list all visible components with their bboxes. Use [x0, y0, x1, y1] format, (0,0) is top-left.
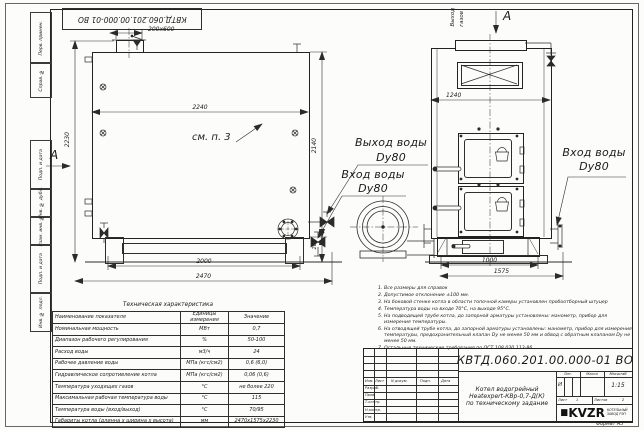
col-izm: Изм.	[365, 379, 373, 383]
water-outlet-dy: Dy80	[350, 151, 432, 164]
col-header-name: Наименование показателя	[53, 312, 181, 324]
row-tkontr: Т.контр.	[365, 400, 381, 404]
logo-sub2: ЗАВОД РЭП	[607, 413, 628, 417]
side-view-fittings	[85, 35, 334, 256]
cell-unit: °С	[181, 405, 229, 417]
dim-front-base: 1000	[441, 257, 538, 264]
lit-label: Лит.	[556, 372, 580, 376]
scale-value: 1:15	[604, 382, 632, 389]
cell-unit: МПа (кгс/см2)	[181, 370, 229, 382]
format-note: Формат А3	[596, 422, 623, 427]
col-list: Лист	[375, 379, 384, 383]
col-doc: N докум.	[391, 379, 408, 383]
table-header-row: Наименование показателя Единицы измерени…	[53, 312, 285, 324]
cell-name: Рабочее давление воды	[53, 358, 181, 370]
cell-unit: МПа (кгс/см2)	[181, 358, 229, 370]
notes-list: Все размеры для справок Допустимое откло…	[374, 286, 632, 353]
cell-value: 50-100	[229, 335, 285, 347]
document-code: КВТД.060.201.00.000-01 ВО	[458, 349, 632, 371]
cell-name: Температура уходящих газов	[53, 381, 181, 393]
cell-name: Расход воды	[53, 347, 181, 359]
cell-value: 24	[229, 347, 285, 359]
padlock-icon	[496, 198, 509, 212]
tech-table-title: Техническая характеристика	[52, 302, 284, 308]
note-item: Температура воды на входе 70°С, на выход…	[384, 307, 632, 313]
table-row: Номинальная мощностьМВт0,7	[53, 324, 285, 336]
row-nkontr: Н.контр.	[365, 408, 381, 412]
drawing-sheet: Перв. примен. Справ. № Подп. и дата Инв.…	[0, 0, 644, 430]
dim-height-total: 2230	[64, 132, 71, 147]
document-name: Котел водогрейный Heatexpert-КВр-0,7-Д(К…	[458, 371, 556, 421]
cell-name: Максимальная рабочая температура воды	[53, 393, 181, 405]
cell-value: 0,7	[229, 324, 285, 336]
inspection-mark	[100, 130, 106, 136]
cell-unit: °С	[181, 381, 229, 393]
row-prov: Пров.	[365, 393, 375, 397]
document-name-line2: Heatexpert-КВр-0,7-Д(К)	[469, 393, 545, 400]
col-header-unit: Единицы измерения	[181, 312, 229, 324]
table-row: Расход водым3/ч24	[53, 347, 285, 359]
dim-height-body: 2140	[311, 138, 318, 153]
inspection-mark	[292, 130, 298, 136]
water-inlet-right-label: Вход воды	[556, 146, 632, 159]
document-name-line3: по техническому задание	[466, 400, 548, 407]
table-row: Рабочее давление водыМПа (кгс/см2)0,6 (6…	[53, 358, 285, 370]
cell-value: 0,06 (0,6)	[229, 370, 285, 382]
section-arrow-label-top: А	[503, 9, 511, 23]
document-code-text: КВТД.060.201.00.000-01 ВО	[457, 353, 634, 367]
table-row: Температура воды (вход/выход)°С70/95	[53, 405, 285, 417]
lit-value: И	[556, 382, 564, 388]
table-row: Максимальная рабочая температура воды°С1…	[53, 393, 285, 405]
cell-value: не более 220	[229, 381, 285, 393]
cell-value: 0,6 (6,0)	[229, 358, 285, 370]
bolts	[460, 127, 519, 233]
water-inlet-right-dy: Dy80	[556, 160, 632, 173]
section-arrow-label-left: А	[50, 148, 58, 162]
gas-outlet-label-line2: газов	[459, 11, 465, 27]
dim-base-height: 267	[312, 240, 318, 250]
cell-name: Температура воды (вход/выход)	[53, 405, 181, 417]
col-date: Дата	[441, 379, 450, 383]
table-row: Габариты котла (длинна х ширина х высота…	[53, 416, 285, 428]
row-razrab: Разраб.	[365, 386, 379, 390]
table-row: Температура уходящих газов°Сне более 220	[53, 381, 285, 393]
cell-unit: %	[181, 335, 229, 347]
sheets-label: Листов	[594, 398, 607, 402]
axis-lines	[129, 28, 490, 268]
row-utv: Утв.	[365, 415, 373, 419]
logo-bars-icon: ▮▮	[560, 408, 566, 418]
inspection-mark	[290, 187, 296, 193]
table-row: Диапазон рабочего регулирования%50-100	[53, 335, 285, 347]
leader-lines	[46, 11, 626, 238]
document-name-line1: Котел водогрейный	[476, 386, 539, 393]
see-note-label: см. п. 3	[192, 132, 231, 143]
col-header-value: Значение	[229, 312, 285, 324]
sheet-value: 1	[576, 398, 578, 402]
cell-unit: МВт	[181, 324, 229, 336]
padlock-icon	[496, 148, 509, 162]
dim-front-total: 1575	[440, 268, 563, 275]
inspection-mark	[100, 84, 106, 90]
note-item: Все размеры для справок	[384, 286, 632, 292]
cell-value: 2470х1575х2230	[229, 416, 285, 428]
note-item: На подводящей трубе котла, до запорной а…	[384, 314, 632, 326]
col-sign: Подп.	[420, 379, 431, 383]
cell-unit: мм	[181, 416, 229, 428]
company-logo: ▮▮ KVZR КОТЕЛЬНЫЙ ЗАВОД РЭП	[556, 404, 632, 421]
title-block: Изм. Лист N докум. Подп. Дата Разраб. Пр…	[363, 348, 633, 422]
mass-label: Масса	[580, 372, 604, 376]
note-item: На боковой стенке котла в области топочн…	[384, 300, 632, 306]
water-inlet-left-dy: Dy80	[334, 182, 412, 195]
cell-unit: м3/ч	[181, 347, 229, 359]
gas-outlet-label-line1: Выход	[450, 8, 456, 27]
scale-label: Масштаб	[604, 372, 632, 376]
front-view-details	[424, 43, 562, 255]
logo-text: KVZR	[568, 406, 605, 420]
dim-length-total: 2470	[75, 273, 332, 280]
water-outlet-label: Выход воды	[350, 136, 432, 149]
cell-name: Габариты котла (длинна х ширина х высота…	[53, 416, 181, 428]
sheets-value: 2	[622, 398, 624, 402]
cell-name: Диапазон рабочего регулирования	[53, 335, 181, 347]
tech-table: Наименование показателя Единицы измерени…	[52, 311, 285, 428]
dim-body-length: 2240	[92, 104, 308, 111]
dim-front-width: 1240	[446, 92, 461, 99]
table-row: Гидравлическое сопротивление котлаМПа (к…	[53, 370, 285, 382]
flange-circle	[278, 219, 298, 239]
note-item: Допустимое отклонение ±100 мм.	[384, 293, 632, 299]
water-inlet-left-label: Вход воды	[334, 168, 412, 181]
cell-name: Гидравлическое сопротивление котла	[53, 370, 181, 382]
dim-legs-span: 2000	[108, 258, 300, 265]
sheet-label: Лист	[558, 398, 567, 402]
door-handle	[433, 167, 470, 248]
inlet-flange	[550, 222, 562, 250]
cell-name: Номинальная мощность	[53, 324, 181, 336]
fan	[357, 201, 434, 258]
cell-value: 70/95	[229, 405, 285, 417]
cell-unit: °С	[181, 393, 229, 405]
note-item: На отводящей трубе котла, до запорной ар…	[384, 327, 632, 345]
cell-value: 115	[229, 393, 285, 405]
dim-stub: 200x600	[148, 26, 174, 33]
